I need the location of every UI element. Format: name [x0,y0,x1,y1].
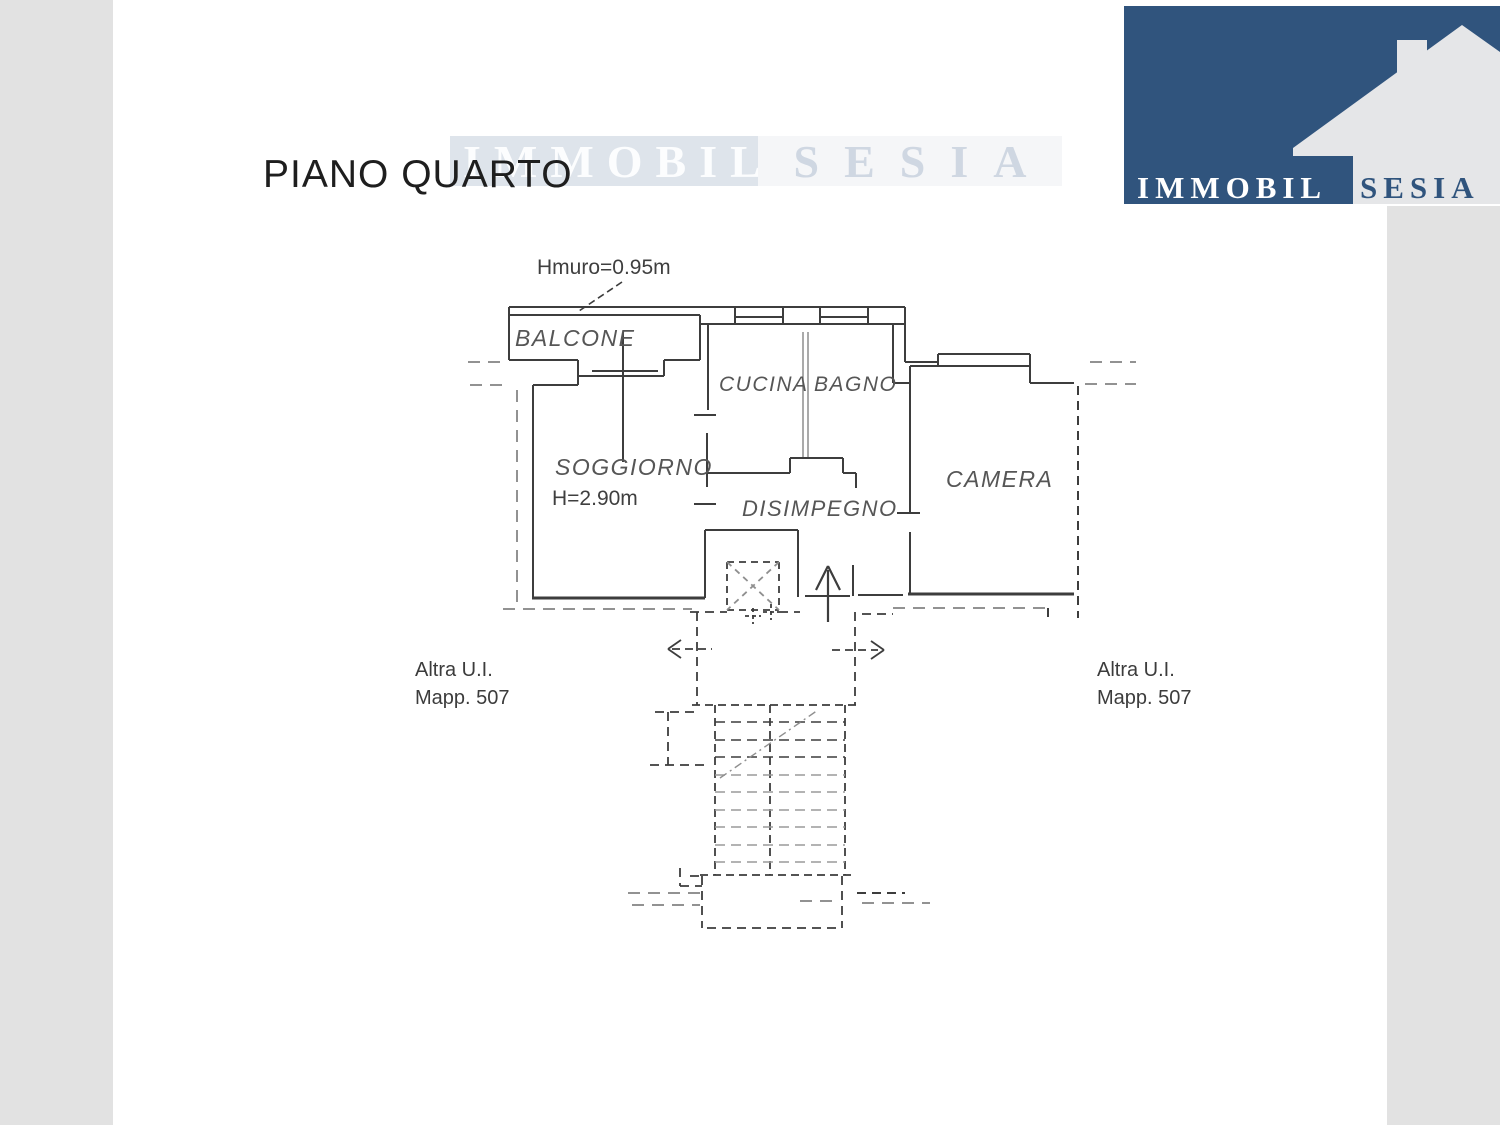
adjacent-unit-right-line1: Altra U.I. [1097,659,1175,681]
wall-height-label: Hmuro=0.95m [537,256,671,279]
room-label-balcone: BALCONE [515,325,635,351]
room-label-bagno: BAGNO [814,373,897,396]
adjacent-unit-note-left: Altra U.I. Mapp. 507 [415,659,510,709]
room-label-camera: CAMERA [946,466,1053,492]
up-arrow [816,566,840,622]
adjacent-unit-left-line2: Mapp. 507 [415,687,510,709]
ceiling-height-label: H=2.90m [552,487,638,510]
page-title: PIANO QUARTO [263,153,573,197]
adjacent-unit-note-right: Altra U.I. Mapp. 507 [1097,659,1192,709]
top-windows [700,307,1074,383]
logo-text-sesia: SESIA [1360,170,1480,204]
boundary-dashes-dark [857,386,1078,893]
elevator-shaft [727,562,779,624]
stair-landing [650,612,893,765]
logo-text-immobil: IMMOBIL [1137,170,1327,204]
staircase [692,705,858,875]
room-label-cucina: CUCINA [719,373,809,396]
room-label-disimpegno: DISIMPEGNO [742,496,898,521]
adjacent-unit-right-line2: Mapp. 507 [1097,687,1192,709]
door-swing-arrows [668,640,884,659]
agency-logo: IMMOBIL SESIA [1124,6,1500,204]
stair-bottom-landing [680,868,842,928]
scanned-floorplan-page: PIANO QUARTO IMMOBIL SESIA IMMOBIL SESIA [0,0,1500,1125]
boundary-dashes [468,362,1136,905]
room-label-soggiorno: SOGGIORNO [555,454,713,480]
kitchen-bath-walls [707,324,910,488]
adjacent-unit-left-line1: Altra U.I. [415,659,493,681]
